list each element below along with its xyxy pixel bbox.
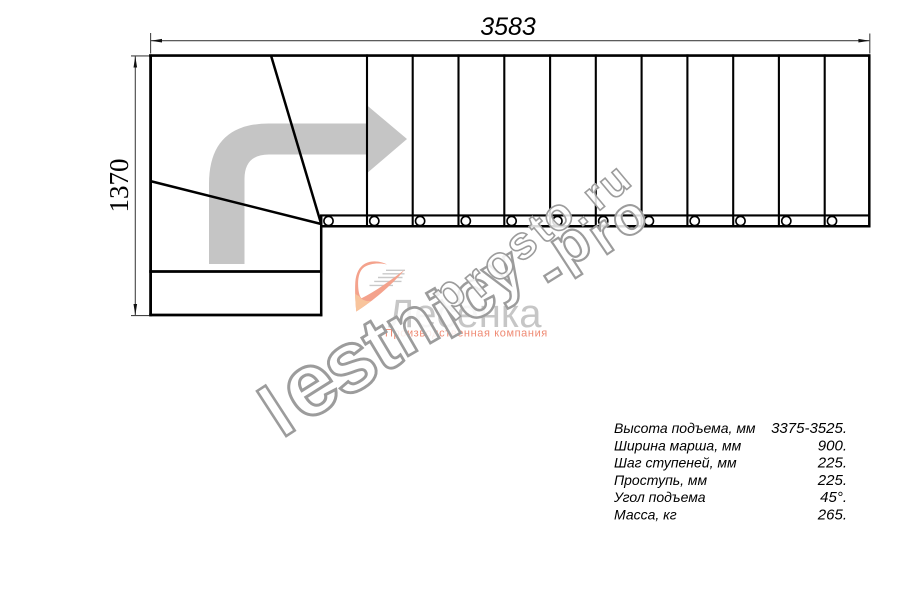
svg-text:225.: 225. (817, 455, 847, 472)
svg-text:Высота подъема, мм: Высота подъема, мм (614, 420, 756, 436)
svg-text:Ширина марша, мм: Ширина марша, мм (614, 437, 742, 453)
svg-text:225.: 225. (817, 472, 847, 489)
svg-text:900.: 900. (818, 437, 847, 454)
svg-text:Масса, кг: Масса, кг (614, 507, 677, 523)
svg-text:265.: 265. (817, 507, 847, 524)
svg-text:Угол подъема: Угол подъема (613, 489, 706, 505)
svg-text:3375-3525.: 3375-3525. (771, 420, 847, 437)
svg-text:3583: 3583 (480, 13, 536, 41)
svg-text:1370: 1370 (104, 159, 134, 213)
svg-text:45°.: 45°. (820, 489, 847, 506)
svg-text:Шаг ступеней, мм: Шаг ступеней, мм (614, 455, 737, 471)
svg-text:Проступь, мм: Проступь, мм (614, 472, 708, 488)
